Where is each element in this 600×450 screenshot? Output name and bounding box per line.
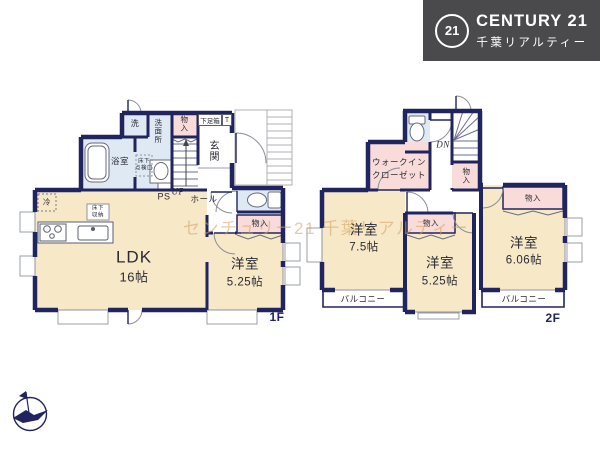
label-washroom: 洗面所 <box>154 118 162 144</box>
kitchen-counter-icon <box>38 222 113 243</box>
label-storage-upper: 物入 <box>180 116 188 133</box>
label-bedroom3-2f: 洋室 <box>510 236 538 250</box>
label-wic-1: ウォークイン <box>372 158 426 167</box>
label-balcony-right: バルコニー <box>502 295 547 304</box>
label-floor2: 2F <box>545 312 560 324</box>
label-bedroom2-2f-size: 5.25帖 <box>422 276 458 288</box>
brand-text-block: CENTURY 21 千葉リアルティー <box>476 12 588 50</box>
label-bedroom1-2f: 洋室 <box>350 223 378 237</box>
label-stairs-dn: DN <box>436 141 450 150</box>
label-underfloor-1: 床下 <box>92 206 104 212</box>
label-storage-stairs: 物入 <box>462 168 470 185</box>
label-pipe-space: PS <box>157 193 170 202</box>
label-inspection-2: 点検口 <box>135 166 153 172</box>
label-storage3: 物入 <box>525 194 541 202</box>
label-ldk: LDK <box>116 249 152 266</box>
label-stairs-up: UP <box>172 188 185 197</box>
compass-north-icon <box>13 391 48 431</box>
brand-header: 21 CENTURY 21 千葉リアルティー <box>423 0 600 61</box>
label-hall: ホール <box>190 195 217 204</box>
label-bath: 浴室 <box>111 157 129 166</box>
label-bedroom-1f: 洋室 <box>231 257 259 271</box>
label-shoe-box-t: T <box>222 114 232 126</box>
label-balcony-left: バルコニー <box>341 295 386 304</box>
label-ldk-size: 16帖 <box>120 271 149 284</box>
label-shoe-box: 下足箱 <box>198 114 222 126</box>
label-wic-2: クローゼット <box>372 171 426 180</box>
stairs-1f <box>172 139 198 186</box>
label-bedroom2-2f: 洋室 <box>426 256 454 270</box>
label-fridge: 冷 <box>43 198 51 206</box>
stairs-2f <box>452 111 480 155</box>
label-storage-hall: 物入 <box>252 220 269 228</box>
label-underfloor-2: 収納 <box>92 213 104 219</box>
toilet-2f-icon <box>409 116 425 141</box>
century21-logo-icon: 21 <box>435 14 469 48</box>
label-bedroom1-2f-size: 7.5帖 <box>349 242 379 254</box>
floorplan-image: 21 CENTURY 21 千葉リアルティー センチュリー21 千葉リアルティー… <box>0 0 600 450</box>
label-floor1: 1F <box>269 311 284 323</box>
label-storage2: 物入 <box>423 219 439 227</box>
floor1-porch <box>235 110 292 185</box>
label-inspection-1: 床下 <box>138 159 150 165</box>
company-name: 千葉リアルティー <box>476 34 587 50</box>
label-bedroom3-2f-size: 6.06帖 <box>506 255 542 267</box>
logo-badge-number: 21 <box>445 23 459 38</box>
label-bedroom-1f-size: 5.25帖 <box>227 277 263 289</box>
bathtub-icon <box>85 143 109 182</box>
label-entrance: 玄関 <box>207 140 217 162</box>
brand-name: CENTURY 21 <box>476 12 588 31</box>
label-wash: 洗 <box>131 120 140 128</box>
